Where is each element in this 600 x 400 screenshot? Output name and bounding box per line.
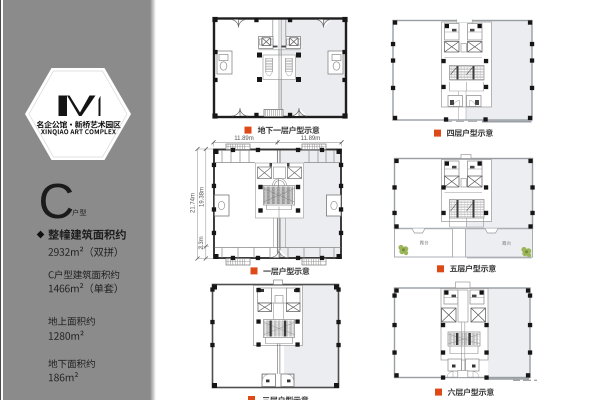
svg-text:19.38m: 19.38m — [200, 187, 206, 207]
svg-text:C: C — [39, 174, 75, 229]
svg-text:11.89m: 11.89m — [234, 136, 254, 142]
svg-text:2.3m: 2.3m — [199, 236, 205, 249]
svg-text:11.89m: 11.89m — [301, 136, 321, 142]
svg-text:21.74m: 21.74m — [191, 193, 197, 213]
